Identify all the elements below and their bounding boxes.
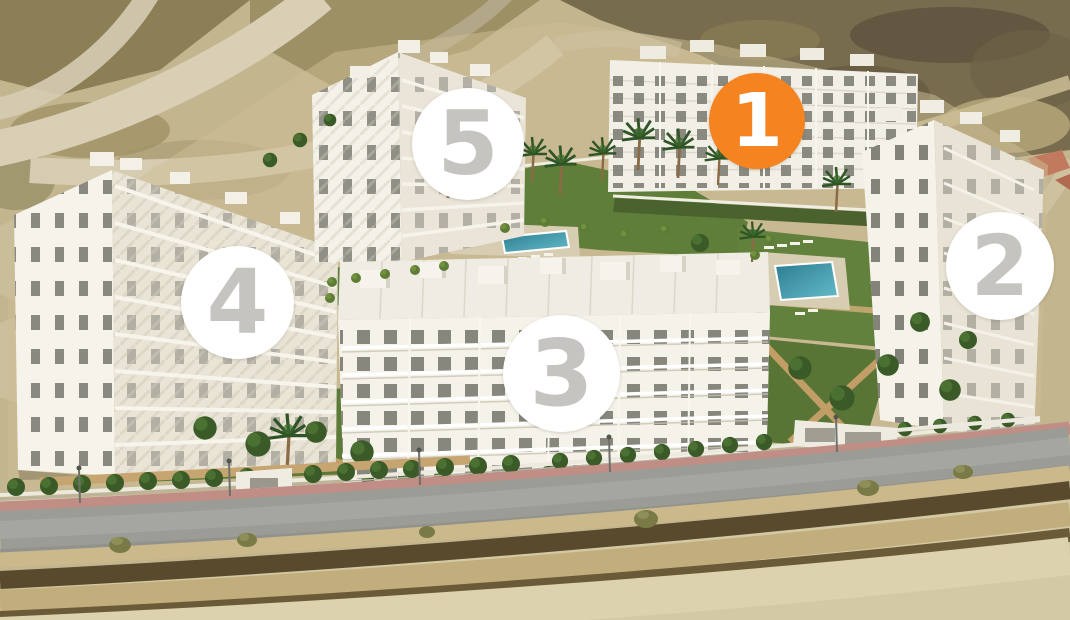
block-marker-2[interactable]: 2 — [946, 212, 1054, 320]
block-marker-label: 5 — [437, 100, 498, 188]
block-marker-label: 2 — [971, 224, 1029, 308]
block-marker-label: 3 — [529, 328, 593, 420]
block-marker-label: 4 — [207, 258, 269, 347]
block-marker-5[interactable]: 5 — [412, 88, 524, 200]
block-marker-3[interactable]: 3 — [503, 315, 620, 432]
block-marker-4[interactable]: 4 — [181, 246, 294, 359]
block-marker-label: 1 — [731, 84, 783, 158]
block-marker-1[interactable]: 1 — [709, 73, 805, 169]
site-plan: 1 2 3 4 5 — [0, 0, 1070, 620]
aerial-render — [0, 0, 1070, 620]
